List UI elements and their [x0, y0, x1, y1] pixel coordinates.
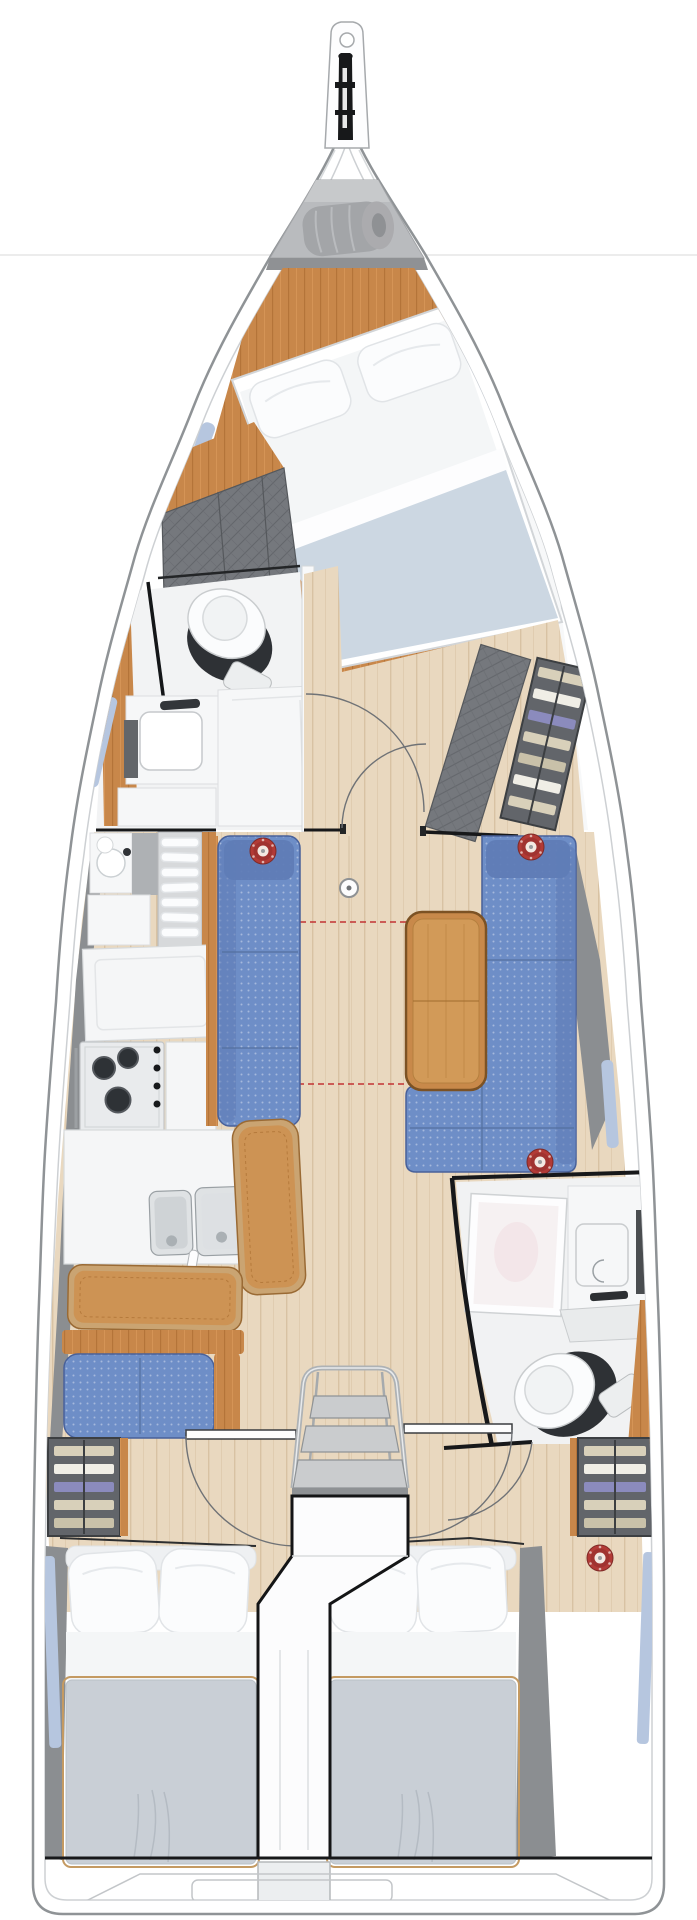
galley-bench-horizontal [67, 1264, 242, 1331]
settee-wood-trim [206, 836, 218, 1126]
wardrobe-wood-edge [120, 1438, 128, 1536]
nav-seat-blue [64, 1352, 240, 1438]
shower-step [118, 788, 216, 826]
stove-knob [154, 1083, 161, 1090]
mast-post-center [347, 886, 352, 891]
nav-seat-arm [214, 1352, 240, 1438]
ceiling-speaker [250, 838, 276, 864]
duvet [66, 1632, 256, 1680]
settee-backrest [220, 840, 236, 1122]
duvet [330, 1632, 516, 1680]
starboard-cabin-door [404, 1424, 512, 1433]
starboard-wardrobe-shelves [570, 1438, 652, 1536]
companionway-step [310, 1396, 390, 1418]
door-hinge [420, 826, 426, 836]
salon-folding-table [406, 912, 486, 1090]
port-cabin-door [186, 1430, 296, 1439]
door-hinge [340, 824, 346, 834]
anchor-locker [266, 180, 428, 270]
roller-crossbar [335, 110, 355, 115]
nav-seat-backrest [62, 1330, 244, 1354]
galley-gray-counter [132, 833, 158, 895]
stove-knob [154, 1101, 161, 1108]
galley-sink-faucet [123, 848, 131, 856]
companionway-step [301, 1426, 399, 1452]
pillow [67, 1549, 161, 1637]
forestay-fitting [340, 33, 354, 47]
yacht-floorplan-page [0, 0, 697, 1920]
sofa-backrest [556, 846, 576, 1164]
stove-knob [154, 1047, 161, 1054]
galley-bench-vertical [231, 1118, 306, 1295]
companionway-step [293, 1460, 407, 1488]
yacht-floorplan [0, 0, 697, 1920]
aft-head-shower [465, 1194, 567, 1317]
galley-dish-rack [158, 832, 202, 952]
vanity-sink [140, 712, 202, 770]
galley-worktop [82, 945, 219, 1042]
mattress [66, 1680, 256, 1864]
galley-gas-stove-3-burner [76, 1042, 164, 1132]
ceiling-speaker [587, 1545, 613, 1571]
galley-round-sink-small [97, 837, 113, 853]
pillow [416, 1546, 508, 1634]
wardrobe-wood-edge [570, 1438, 578, 1536]
galley-refrigerator [88, 895, 150, 945]
anchor-roller-slot [343, 68, 348, 128]
aft-cabin-port [40, 1538, 259, 1867]
ceiling-speaker [518, 834, 544, 860]
roller-crossbar [335, 82, 355, 88]
head-dark-panel [124, 720, 138, 778]
ceiling-speaker [527, 1149, 553, 1175]
burner [118, 1048, 138, 1068]
burner [106, 1088, 131, 1113]
port-wardrobe-shelves [48, 1438, 128, 1536]
mattress [330, 1680, 516, 1864]
pillow [158, 1548, 250, 1636]
locker-shelf [304, 180, 390, 202]
salon-port-settee [206, 836, 300, 1126]
burner [93, 1057, 115, 1079]
stove-knob [154, 1065, 161, 1072]
galley-round-sink [97, 849, 125, 877]
